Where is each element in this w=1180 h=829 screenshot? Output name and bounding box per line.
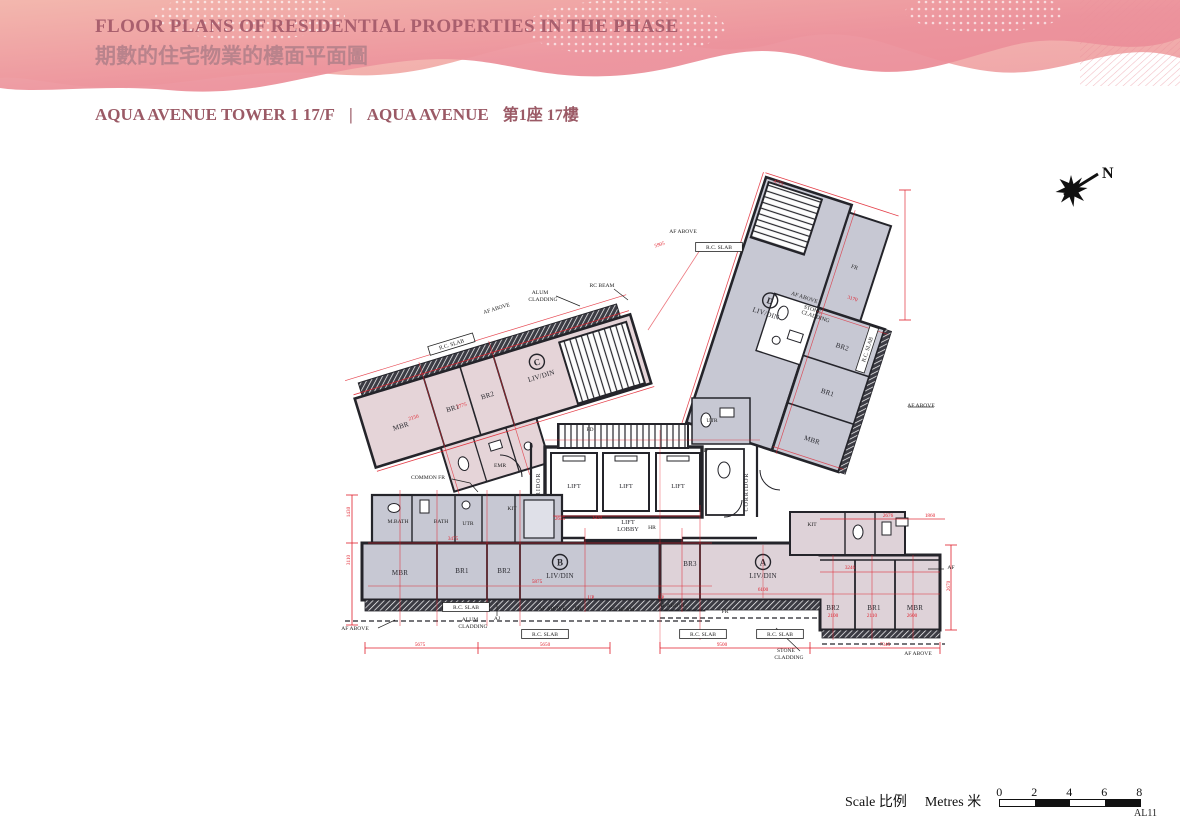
dimension-label: 3110 [346, 555, 352, 566]
dimension-label: 2600 [907, 613, 918, 619]
callout-label-text: CLADDING [528, 297, 557, 303]
scale-tick-8: 8 [1136, 785, 1142, 800]
callout-label: CLADDING [774, 655, 803, 661]
callout-label: STONE [777, 648, 796, 654]
dimension-label: 1430 [592, 515, 603, 521]
development-name-en: AQUA AVENUE [367, 105, 489, 125]
unit-a-wing: BR3 A LIV/DIN KIT BR2 BR1 MBR [660, 512, 945, 644]
callout-label: AJ [494, 616, 501, 622]
callout-label: RC BEAM [609, 607, 634, 613]
callout-label-text: AF ABOVE [483, 302, 512, 316]
dimension-label: UP [658, 595, 665, 601]
dimension-label-text: 9500 [717, 642, 728, 648]
callout-label-text: R.C. SLAB [532, 632, 558, 638]
dimension-label-text: 2600 [907, 613, 918, 619]
metres-label-zh: 米 [967, 795, 981, 810]
callout-label: FR [575, 606, 582, 612]
callout-label: CLADDING [528, 297, 557, 303]
callout-label: R.C. SLAB [443, 603, 490, 612]
callout-label-text: AF ABOVE [907, 403, 935, 409]
callout-label-text: ALUM [532, 290, 548, 296]
dimension-label: 5875 [532, 579, 543, 585]
callout-label-text: FR [722, 609, 729, 615]
dimension-label-text: 2676 [883, 513, 894, 519]
dimension-label: 2645 [555, 516, 566, 522]
dimension-label: 3475 [448, 536, 459, 542]
callout-label-text: ALUM [462, 617, 478, 623]
dimension-label-text: 3110 [346, 555, 352, 566]
callout-label: UTR [706, 418, 717, 424]
scale-tick-0: 0 [996, 785, 1002, 800]
lift-3-label: LIFT [671, 483, 685, 490]
room-label-br2-b: BR2 [497, 567, 511, 575]
scale-tick-2: 2 [1031, 785, 1037, 800]
callout-label: R.C. SLAB [680, 630, 727, 639]
callout-label: R.C. SLAB [757, 630, 804, 639]
dimension-label: 9500 [717, 642, 728, 648]
callout-label-text: R.C. SLAB [453, 605, 479, 611]
scale-strip [999, 799, 1141, 807]
dimension-label-text: 3475 [448, 536, 459, 542]
scale-tick-labels: 0 2 4 6 8 [999, 785, 1139, 797]
room-label-bath-b: BATH [434, 519, 449, 525]
room-label-mbath-b: M.BATH [388, 519, 409, 525]
callout-label-text: RC BEAM [609, 607, 634, 613]
dimension-label: 5650 [540, 642, 551, 648]
room-label-br1-a: BR1 [867, 604, 881, 612]
lift-lobby-label-1: LIFT [621, 519, 635, 526]
callout-label: R.C. SLAB [696, 243, 743, 252]
development-name-zh: 第1座 17樓 [503, 101, 579, 125]
callout-label-text: UTR [706, 418, 717, 424]
callout-label: ALUM [532, 290, 548, 296]
dimension-label-text: 5905 [654, 241, 666, 250]
callout-label-text: R.C. SLAB [690, 632, 716, 638]
callout-label: AF ABOVE [483, 302, 512, 316]
callout-label: HR [648, 525, 656, 531]
dimension-label: 2110 [867, 613, 878, 619]
callout-label: FD [586, 427, 593, 433]
dimension-label-text: 5675 [415, 642, 426, 648]
scale-label-en: Scale [845, 795, 875, 810]
dimension-label: 7345 [880, 642, 891, 648]
room-label-utr-b: UTR [462, 521, 473, 527]
tower-floor-label: AQUA AVENUE TOWER 1 17/F [95, 105, 335, 125]
dimension-label-text: 3246 [845, 565, 856, 571]
room-label-br1-b: BR1 [455, 567, 469, 575]
scale-seg [1000, 800, 1036, 806]
unit-b-letter: B [557, 558, 563, 568]
sheet-number: AL11 [1134, 808, 1157, 819]
callout-label: AF ABOVE [538, 606, 566, 612]
room-label-br3-a: BR3 [683, 560, 697, 568]
dimension-label-text: 1430 [592, 515, 603, 521]
callout-label: AF ABOVE [904, 651, 932, 657]
room-label-mbr-a: MBR [907, 604, 923, 612]
callout-label-text: FR [575, 606, 582, 612]
callout-label-text: AF ABOVE [669, 229, 697, 235]
lift-1-label: LIFT [567, 483, 581, 490]
callout-label: FR [722, 609, 729, 615]
north-arrow: N [1056, 165, 1115, 207]
callout-label-text: EMR [494, 463, 506, 469]
callout-label-text: HR [648, 525, 656, 531]
callout-label-text: PD [700, 448, 707, 454]
callout-label: AF ABOVE [341, 626, 369, 632]
metres-label-en: Metres [925, 795, 964, 810]
dimension-label: 5675 [415, 642, 426, 648]
scale-bar-graphic: 0 2 4 6 8 [999, 785, 1139, 811]
dimension-label-text: UP [658, 595, 665, 601]
callout-label: CLADDING [458, 624, 487, 630]
dimension-label: 1860 [925, 513, 936, 519]
lift-lobby-label-2: LOBBY [617, 526, 639, 533]
callout-label: ALUM [462, 617, 478, 623]
callout-label-text: R.C. SLAB [767, 632, 793, 638]
scale-tick-6: 6 [1101, 785, 1107, 800]
dimension-label-text: 7345 [880, 642, 891, 648]
dimension-label: 2670 [946, 580, 952, 591]
callout-label: R.C. SLAB [522, 630, 569, 639]
callout-label: EMR [494, 463, 506, 469]
scale-seg [1070, 800, 1106, 806]
callout-label: AF ABOVE [658, 603, 686, 609]
callout-label-text: AF ABOVE [341, 626, 369, 632]
dimension-label-text: 5650 [540, 642, 551, 648]
metres-label: Metres 米 [925, 791, 981, 811]
callout-label-text: COMMON FR [411, 475, 445, 481]
dimension-label-text: 2645 [555, 516, 566, 522]
dimension-label-text: 2100 [828, 613, 839, 619]
callout-label-text: FD [586, 427, 593, 433]
dimension-label: 1430 [346, 506, 352, 517]
corridor-right-label: CORRIDOR [744, 472, 750, 511]
room-label-livdin-b: LIV/DIN [546, 572, 573, 580]
callout-label: AF [947, 565, 954, 571]
dimension-label-text: 5875 [532, 579, 543, 585]
callout-label-text: AF ABOVE [658, 603, 686, 609]
dimension-label-text: 6100 [758, 587, 769, 593]
callout-label-text: STONE [777, 648, 796, 654]
room-label-kit-a: KIT [807, 522, 817, 528]
scale-label: Scale 比例 [845, 791, 907, 811]
dimension-label: 3246 [845, 565, 856, 571]
callout-label: AF ABOVE [669, 229, 697, 235]
dimension-label-text: 1430 [346, 506, 352, 517]
subtitle-divider: | [349, 105, 353, 125]
callout-label-text: CLADDING [458, 624, 487, 630]
scale-seg [1106, 800, 1141, 806]
callout-label-text: RC BEAM [589, 283, 614, 289]
plan-subtitle: AQUA AVENUE TOWER 1 17/F | AQUA AVENUE 第… [95, 101, 579, 125]
scale-bar: Scale 比例 Metres 米 0 2 4 6 8 [845, 785, 1139, 811]
callout-label-text: AF [947, 565, 954, 571]
callout-label: PD [700, 448, 707, 454]
lift-2-label: LIFT [619, 483, 633, 490]
callout-label: AF ABOVE [907, 403, 935, 409]
dimension-label-text: 2670 [946, 580, 952, 591]
dimension-label-text: 1860 [925, 513, 936, 519]
scale-label-zh: 比例 [879, 795, 907, 810]
room-label-kit-b: KIT [507, 506, 517, 512]
dimension-label: UP [588, 595, 595, 601]
north-label: N [1102, 165, 1114, 182]
floor-plan-page: { "header": { "title_en": "FLOOR PLANS O… [0, 0, 1180, 829]
callout-label-text: AF ABOVE [904, 651, 932, 657]
dimension-label-text: 2110 [867, 613, 878, 619]
dimension-label-text: UP [588, 595, 595, 601]
scale-seg [1036, 800, 1071, 806]
dimension-label: 2676 [883, 513, 894, 519]
callout-label: COMMON FR [411, 475, 445, 481]
page-title-zh: 期數的住宅物業的樓面平面圖 [95, 40, 679, 70]
page-title-en: FLOOR PLANS OF RESIDENTIAL PROPERTIES IN… [95, 16, 679, 38]
scale-tick-4: 4 [1066, 785, 1072, 800]
callout-label-text: CLADDING [774, 655, 803, 661]
callout-label-text: AJ [494, 616, 501, 622]
callout-label-text: AF ABOVE [538, 606, 566, 612]
compass-star [1056, 175, 1088, 207]
dimension-label: 6100 [758, 587, 769, 593]
dimension-label: 2100 [828, 613, 839, 619]
callout-label-text: R.C. SLAB [706, 245, 732, 251]
callout-label: RC BEAM [589, 283, 614, 289]
dimension-label: 5905 [654, 241, 666, 250]
